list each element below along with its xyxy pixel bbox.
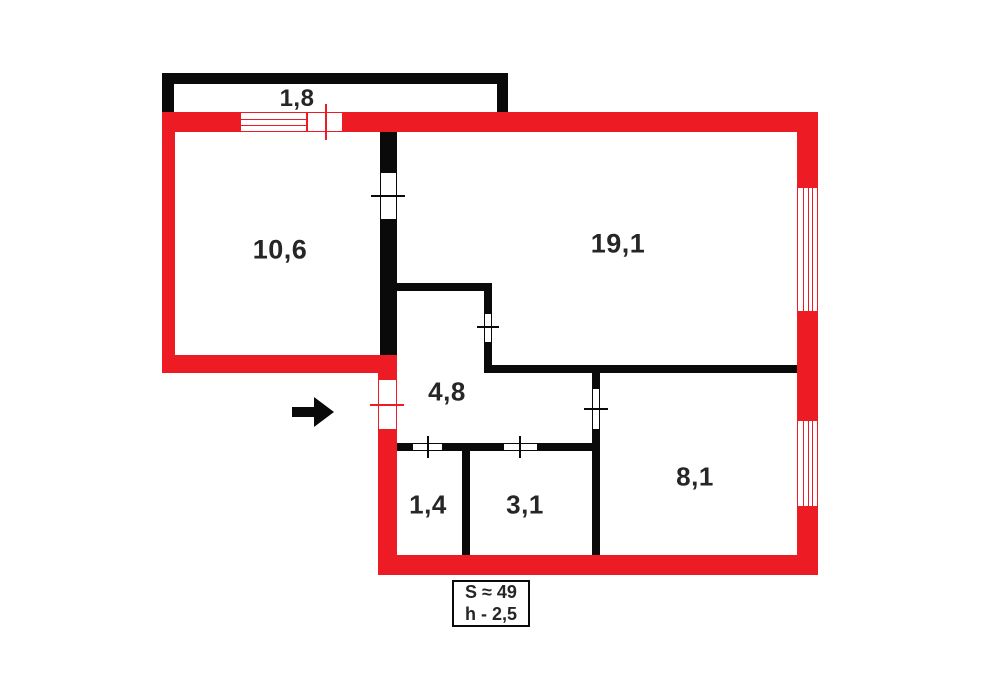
door-room31-tick bbox=[519, 436, 521, 458]
interior-wall-room106-right bbox=[380, 132, 397, 355]
window-balcony-icon bbox=[240, 112, 307, 132]
interior-wall-hall-notch-top bbox=[397, 283, 492, 291]
room-19-1-area-label: 19,1 bbox=[591, 229, 646, 260]
legend-ceiling-height: h - 2,5 bbox=[465, 604, 517, 626]
interior-wall-room191-bottom bbox=[484, 365, 797, 373]
room-1-4-area-label: 1,4 bbox=[409, 490, 447, 521]
exterior-wall-left-upper bbox=[162, 112, 175, 373]
room-10-6-area-label: 10,6 bbox=[253, 235, 308, 266]
balcony-area-label: 1,8 bbox=[280, 85, 315, 113]
door-room106-tick bbox=[371, 195, 405, 197]
exterior-wall-bottom bbox=[378, 555, 818, 575]
door-room191-tick bbox=[477, 326, 499, 328]
window-room81-icon bbox=[797, 420, 818, 507]
balcony-wall-top bbox=[162, 73, 508, 84]
exterior-wall-room106-bottom bbox=[162, 355, 397, 373]
legend-total-area: S ≈ 49 bbox=[465, 582, 517, 604]
door-room81-tick bbox=[584, 408, 608, 410]
door-room191-icon bbox=[484, 313, 492, 343]
room-3-1-area-label: 3,1 bbox=[506, 490, 544, 521]
balcony-door-tick bbox=[325, 104, 327, 140]
window-room191-icon bbox=[797, 187, 818, 312]
legend-box: S ≈ 49 h - 2,5 bbox=[452, 580, 530, 627]
door-room14-tick bbox=[427, 436, 429, 458]
room-8-1-area-label: 8,1 bbox=[676, 462, 714, 493]
entrance-door-tick bbox=[370, 404, 404, 406]
hall-4-8-area-label: 4,8 bbox=[428, 377, 466, 408]
floor-plan: 1,8 10,6 19,1 4,8 1,4 3,1 8,1 S ≈ 49 h -… bbox=[0, 0, 982, 700]
interior-wall-room14-room31 bbox=[462, 451, 470, 555]
balcony-wall-right bbox=[497, 73, 508, 113]
balcony-wall-left bbox=[162, 73, 174, 113]
entrance-arrow-head-icon bbox=[314, 397, 334, 427]
